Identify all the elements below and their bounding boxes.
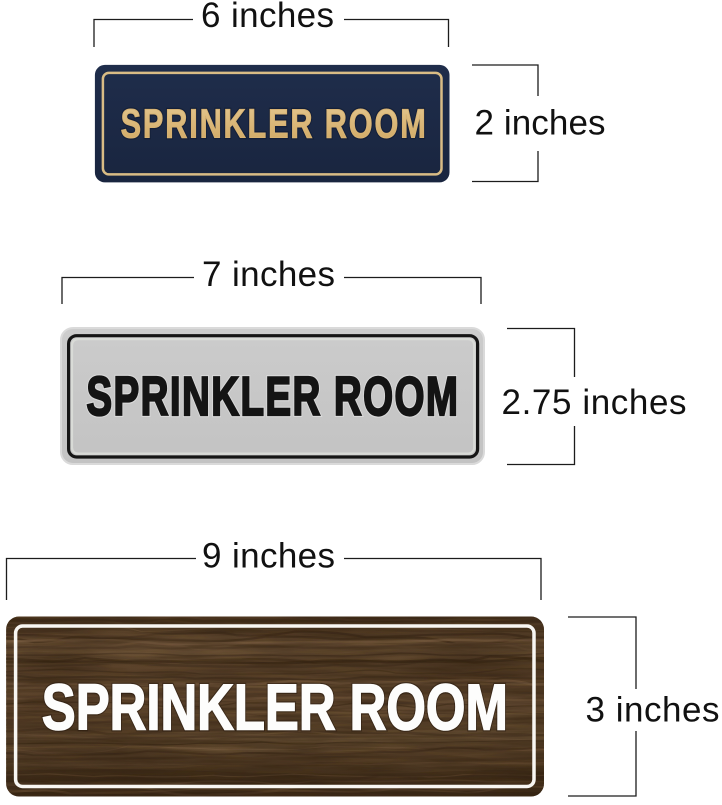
svg-text:3 inches: 3 inches xyxy=(586,691,720,730)
svg-text:SPRINKLER ROOM: SPRINKLER ROOM xyxy=(86,365,459,427)
svg-text:7 inches: 7 inches xyxy=(202,255,335,294)
svg-text:9 inches: 9 inches xyxy=(202,537,335,576)
svg-text:SPRINKLER ROOM: SPRINKLER ROOM xyxy=(42,671,508,743)
svg-text:2.75 inches: 2.75 inches xyxy=(502,383,687,422)
svg-text:6 inches: 6 inches xyxy=(201,0,334,35)
svg-text:2 inches: 2 inches xyxy=(475,103,606,142)
svg-text:SPRINKLER ROOM: SPRINKLER ROOM xyxy=(121,100,428,146)
